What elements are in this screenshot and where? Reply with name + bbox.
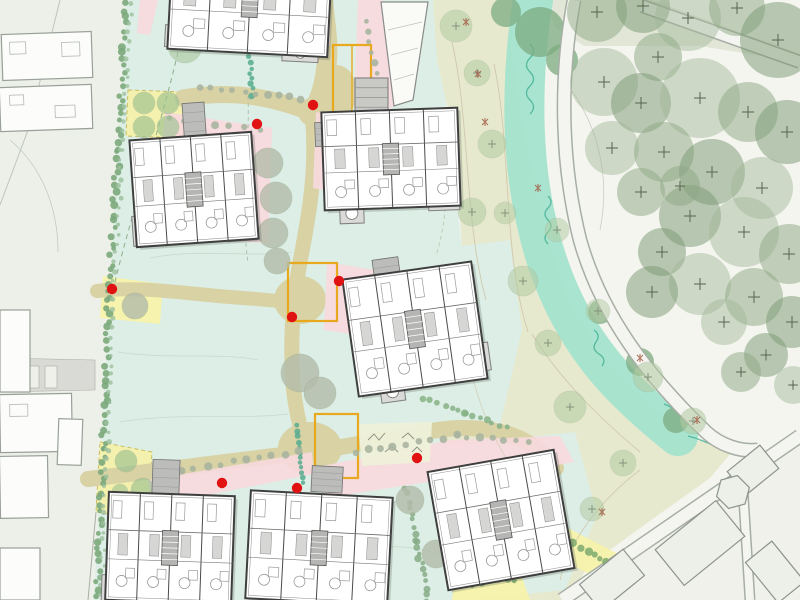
context-parking-bay [45,366,57,388]
shrub [118,110,124,116]
bathroom-core [366,538,378,560]
shrub [125,84,129,88]
shrub [116,214,119,217]
shrub [109,347,113,351]
bathroom-core [173,177,184,199]
shrub [365,29,371,35]
tree [253,148,283,178]
bathroom-core [260,532,272,554]
shrub [412,525,417,530]
shrub [109,354,113,358]
shrub [128,1,133,6]
shrub [118,158,122,162]
site-plan-drawing [0,0,800,600]
site-plan-stage [0,0,800,600]
shrub [104,456,109,461]
context-building [0,548,40,600]
shrub [423,578,428,583]
shrub [121,62,126,67]
shrub [577,545,584,552]
context-building [57,419,83,466]
shrub [106,410,111,415]
shrub [247,71,252,76]
shrub [107,273,113,279]
bathroom-core [296,534,308,556]
shrub [99,555,103,559]
shrub [526,439,532,445]
bathroom-core [335,149,346,169]
red-entrance-dot [334,276,344,286]
shrub [420,396,427,403]
shrub [249,76,254,81]
shrub [513,438,518,443]
context-building-outline [0,456,49,519]
shrub [190,466,196,472]
bathroom-core [184,0,197,6]
bathroom-core [369,148,380,168]
tree [133,116,155,138]
shrub [113,250,117,254]
shrub [455,432,461,438]
road-junction [274,276,326,324]
bathroom-core [264,0,277,10]
shrub [225,122,232,129]
shrub [111,175,117,181]
shrub [371,59,378,66]
shrub [455,408,460,413]
shrub [211,121,219,129]
context-building [0,84,93,131]
shrub [117,233,121,237]
shrub [369,50,374,55]
shrub [104,297,110,303]
shrub [108,233,115,240]
shrub [440,436,448,444]
shrub [299,470,304,475]
shrub [197,84,204,91]
shrub [120,98,126,104]
shrub [414,538,421,545]
shrub [130,13,134,17]
shrub [121,104,126,109]
red-entrance-dot [308,100,318,110]
bathroom-core [234,173,245,195]
shrub [104,421,108,425]
shrub [126,21,131,26]
shrub [296,440,302,446]
shrub [109,325,114,330]
shrub [107,431,110,434]
context-building-outline [0,548,40,600]
shrub [121,138,126,143]
shrub [117,206,120,209]
shrub [123,56,128,61]
shrub [116,223,120,227]
shrub [106,251,113,258]
shrub [110,307,115,312]
shrub [119,196,124,201]
shrub [122,35,127,40]
shrub [122,12,129,19]
shrub [248,60,254,66]
shrub [241,124,247,130]
shrub [249,67,253,71]
shrub [127,39,131,43]
shrub [123,112,126,115]
shrub [109,381,113,385]
shrub [490,435,496,441]
tree [157,116,179,138]
shrub [364,19,369,24]
shrub [469,413,475,419]
bathroom-core [212,537,222,559]
red-entrance-dot [412,453,422,463]
shrub [98,469,104,475]
context-building-outline [57,419,83,466]
shrub [110,297,115,302]
tree [396,486,424,514]
shrub [489,421,494,426]
shrub [231,457,237,463]
shrub [101,504,106,509]
shrub [108,401,111,404]
shrub [127,48,130,51]
shrub [120,129,124,133]
context-building-outline [0,84,93,131]
shrub [120,83,126,89]
shrub [295,433,301,439]
shrub [461,410,468,417]
shrub [122,92,126,96]
shrub [295,447,303,455]
red-entrance-dot [287,312,297,322]
shrub [103,331,108,336]
shrub [109,371,113,375]
shrub [478,415,483,420]
tree [260,182,292,214]
shrub [108,336,112,340]
shrub [412,531,419,538]
shrub [103,370,110,377]
shrub [111,259,115,263]
shrub [207,85,213,91]
cluster-south-east [428,449,578,593]
shrub [103,467,108,472]
shrub [300,475,306,481]
shrub [301,481,305,485]
shrub [219,87,224,92]
bathroom-core [143,180,154,202]
shrub [597,556,602,561]
bathroom-core [224,0,237,8]
shrub [420,566,426,572]
context-building-outline [0,310,30,392]
context-building [0,310,30,392]
shrub [118,177,123,182]
shrub [107,439,112,444]
shrub [110,316,115,321]
tree [304,377,336,409]
shrub [118,132,124,138]
shrub [414,555,421,562]
context-building [0,456,49,519]
shrub [121,119,125,123]
shrub [218,462,224,468]
shrub [117,117,122,122]
stair-core [241,0,259,18]
shrub [112,269,117,274]
shrub [267,452,274,459]
tree [122,293,148,319]
bathroom-core [303,0,316,12]
shrub [402,442,409,449]
shrub [120,77,125,82]
shrub [113,188,121,196]
shrub [103,549,106,552]
shrub [365,445,373,453]
shrub [505,424,510,429]
shrub [97,568,103,574]
bathroom-core [181,535,191,557]
shrub [286,93,294,101]
shrub [500,437,507,444]
shrub [110,365,114,369]
red-entrance-dot [252,119,262,129]
shrub [443,403,449,409]
bathroom-core [118,533,128,555]
context-building [1,31,93,80]
shrub [275,92,282,99]
shrub [422,572,427,577]
shrub [126,76,129,79]
shrub [101,510,106,515]
shrub [299,465,303,469]
shrub [256,455,262,461]
shrub [115,243,118,246]
shrub [118,148,122,152]
shrub [125,29,130,34]
shrub [375,71,380,76]
tree [258,218,288,248]
cluster-north-east [314,108,464,225]
shrub [110,201,118,209]
shrub [116,183,121,188]
shrub [294,423,299,428]
red-entrance-dot [292,483,302,493]
shrub [253,92,259,98]
shrub [264,91,272,99]
shrub [100,536,105,541]
shrub [102,484,106,488]
shrub [298,460,303,465]
shrub [377,445,384,452]
shrub [96,531,101,536]
red-entrance-dot [107,284,117,294]
shrub [464,435,469,440]
shrub [282,451,290,459]
shrub [388,443,396,451]
tree [115,450,137,472]
bathroom-core [331,536,343,558]
shrub [251,86,256,91]
shrub [98,432,104,438]
shrub [592,552,598,558]
shrub [450,406,455,411]
bathroom-core [402,146,413,166]
shrub [366,39,371,44]
tree [157,92,179,114]
shrub [101,363,108,370]
shrub [242,456,250,464]
shrub [416,438,423,445]
shrub [116,93,122,99]
shrub [102,493,106,497]
shrub [297,96,305,104]
bathroom-core [204,175,215,197]
shrub [126,68,130,72]
shrub [204,462,212,470]
shrub [106,448,111,453]
shrub [353,450,360,457]
shrub [413,544,420,551]
tree [133,92,155,114]
shrub [101,521,106,526]
bathroom-core [149,534,159,556]
shrub [434,400,440,406]
shrub [117,166,121,170]
shrub [106,390,110,394]
shrub [104,474,109,479]
shrub [102,531,106,535]
shrub [102,382,109,389]
shrub [93,579,98,584]
shrub [100,401,108,409]
red-entrance-dot [217,478,227,488]
shrub [111,279,114,282]
shrub [298,455,303,460]
shrub [410,516,415,521]
shrub [427,437,433,443]
bathroom-core [436,145,447,165]
shrub [96,494,102,500]
shrub [118,48,126,56]
shrub [426,397,432,403]
shrub [243,89,248,94]
shrub [476,433,484,441]
tree [264,248,290,274]
shrub [423,591,430,598]
shrub [229,87,235,93]
shrub [103,346,110,353]
shrub [497,423,503,429]
